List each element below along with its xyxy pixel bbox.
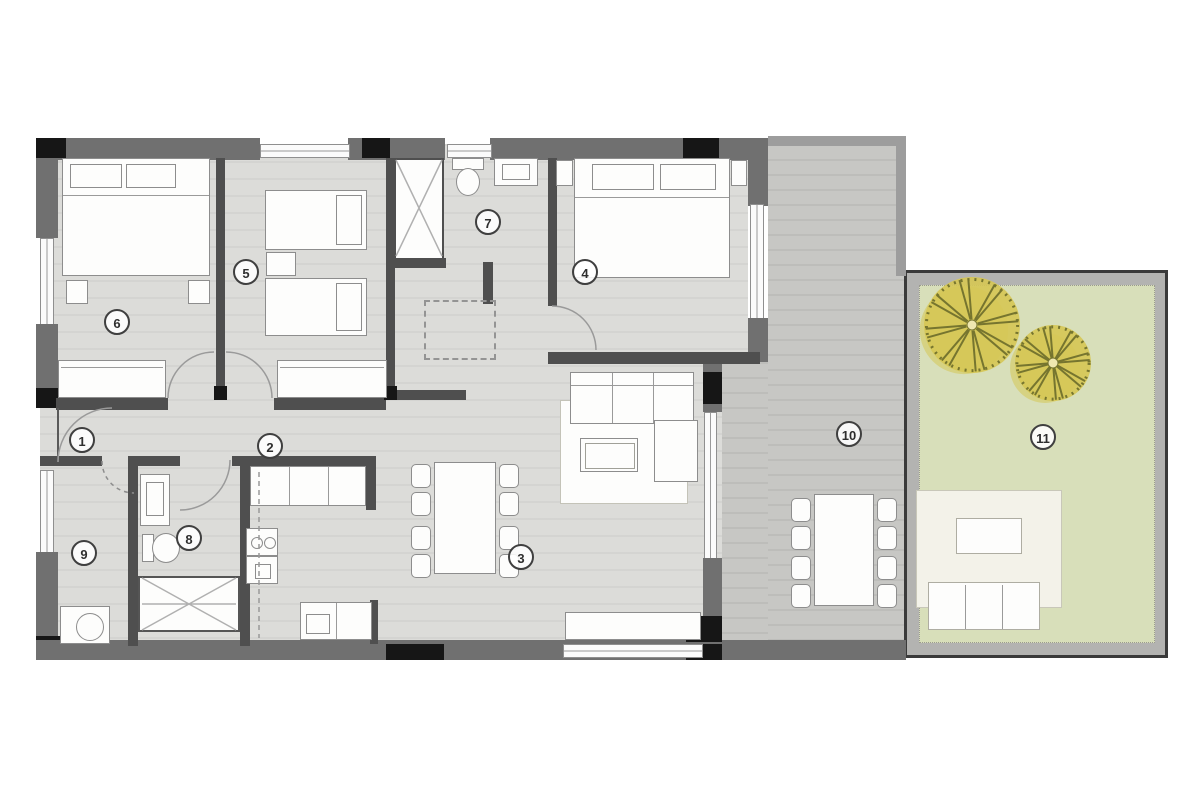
- coffee-table: [580, 438, 638, 472]
- sliding-door-terrace: [704, 412, 717, 560]
- wall-room9-bath8: [128, 456, 138, 646]
- kitchen-cooktop: [246, 528, 278, 556]
- washing-machine: [60, 606, 110, 644]
- window-bed4-terrace: [750, 204, 764, 320]
- wall-left-2: [36, 324, 58, 388]
- window-bottom-living: [563, 644, 703, 658]
- terrace-chair: [791, 556, 811, 580]
- room-marker: 4: [572, 259, 598, 285]
- wall-left-1: [36, 158, 58, 238]
- nightstand-room4-right: [731, 160, 747, 186]
- sofa-seats: [570, 372, 694, 424]
- column-bottom-1: [386, 644, 444, 660]
- bed-double-room6: [62, 158, 210, 276]
- room-marker: 7: [475, 209, 501, 235]
- wall-right-bed4-top: [748, 158, 768, 204]
- sink-room7: [494, 158, 538, 186]
- wall-bedrooms-hall-2: [274, 398, 386, 410]
- room-marker: 8: [176, 525, 202, 551]
- window-top-1: [260, 144, 350, 158]
- room-marker: 6: [104, 309, 130, 335]
- terrace-chair: [877, 526, 897, 550]
- wardrobe-room5: [277, 360, 387, 398]
- wall-top-1: [36, 138, 260, 160]
- terrace-chair: [791, 526, 811, 550]
- sofa-chaise: [654, 420, 698, 482]
- nightstand-room6-left: [66, 280, 88, 304]
- nightstand-room4-left: [556, 160, 573, 186]
- dining-table: [434, 462, 496, 574]
- terrace-table: [814, 494, 874, 606]
- dressing-wardrobe-dashed: [424, 300, 496, 360]
- kitchen-oven: [246, 556, 278, 584]
- garden-lounge-table: [956, 518, 1022, 554]
- bed-single-room5-b: [265, 278, 367, 336]
- apartment-floor-plan: 1234567891011: [0, 0, 1200, 800]
- window-left-2: [40, 470, 54, 554]
- terrace-chair: [791, 498, 811, 522]
- wall-left-3: [36, 552, 58, 638]
- window-left-1: [40, 238, 54, 326]
- terrace-wall-top: [768, 136, 906, 146]
- room-marker: 2: [257, 433, 283, 459]
- terrace-chair: [791, 584, 811, 608]
- column-top-right: [683, 138, 719, 158]
- vanity-room8: [140, 474, 170, 526]
- terrace-chair: [877, 556, 897, 580]
- bed-double-room4: [574, 158, 730, 278]
- kitchen-counter-top: [250, 466, 366, 506]
- column-top-mid: [362, 138, 390, 158]
- wardrobe-room6: [58, 360, 166, 398]
- room-marker: 5: [233, 259, 259, 285]
- wall-bed4-living: [548, 352, 760, 364]
- dining-chair: [411, 492, 431, 516]
- terrace-deck-strip: [722, 362, 768, 640]
- kitchen-cabinet-bottom: [300, 602, 372, 640]
- wall-kitchen-right: [366, 456, 376, 510]
- wall-bed6-bed5: [216, 158, 225, 398]
- room-marker: 11: [1030, 424, 1056, 450]
- wall-kitchen-top-1: [40, 456, 102, 466]
- dining-chair: [411, 464, 431, 488]
- nightstand-room5: [266, 252, 296, 276]
- wall-kitchen-top-3: [232, 456, 376, 466]
- room-marker: 3: [508, 544, 534, 570]
- room-marker: 1: [69, 427, 95, 453]
- floor-plan-canvas: 1234567891011: [0, 0, 1200, 800]
- column-living-right: [703, 372, 722, 404]
- wall-dressing-bottom: [386, 390, 466, 400]
- garden-sofa: [928, 582, 1040, 630]
- shower-room7: [394, 158, 444, 260]
- column-top-left: [36, 138, 66, 158]
- terrace-chair: [877, 584, 897, 608]
- wall-cap-1: [214, 386, 227, 400]
- dining-chair: [411, 526, 431, 550]
- dining-chair: [411, 554, 431, 578]
- wall-kitchen-top-2: [134, 456, 180, 466]
- terrace-wall-right: [896, 136, 906, 276]
- toilet-room7-bowl: [456, 168, 480, 196]
- wall-bottom: [36, 640, 906, 660]
- window-top-2: [447, 144, 492, 158]
- room-marker: 9: [71, 540, 97, 566]
- room-marker: 10: [836, 421, 862, 447]
- wall-dressing-right: [483, 262, 493, 304]
- bed-single-room5-a: [265, 190, 367, 250]
- dining-chair: [499, 464, 519, 488]
- terrace-chair: [877, 498, 897, 522]
- nightstand-room6-right: [188, 280, 210, 304]
- wall-bedrooms-hall-1: [56, 398, 168, 410]
- sideboard-living: [565, 612, 701, 640]
- shower-room8: [138, 576, 240, 632]
- dining-chair: [499, 492, 519, 516]
